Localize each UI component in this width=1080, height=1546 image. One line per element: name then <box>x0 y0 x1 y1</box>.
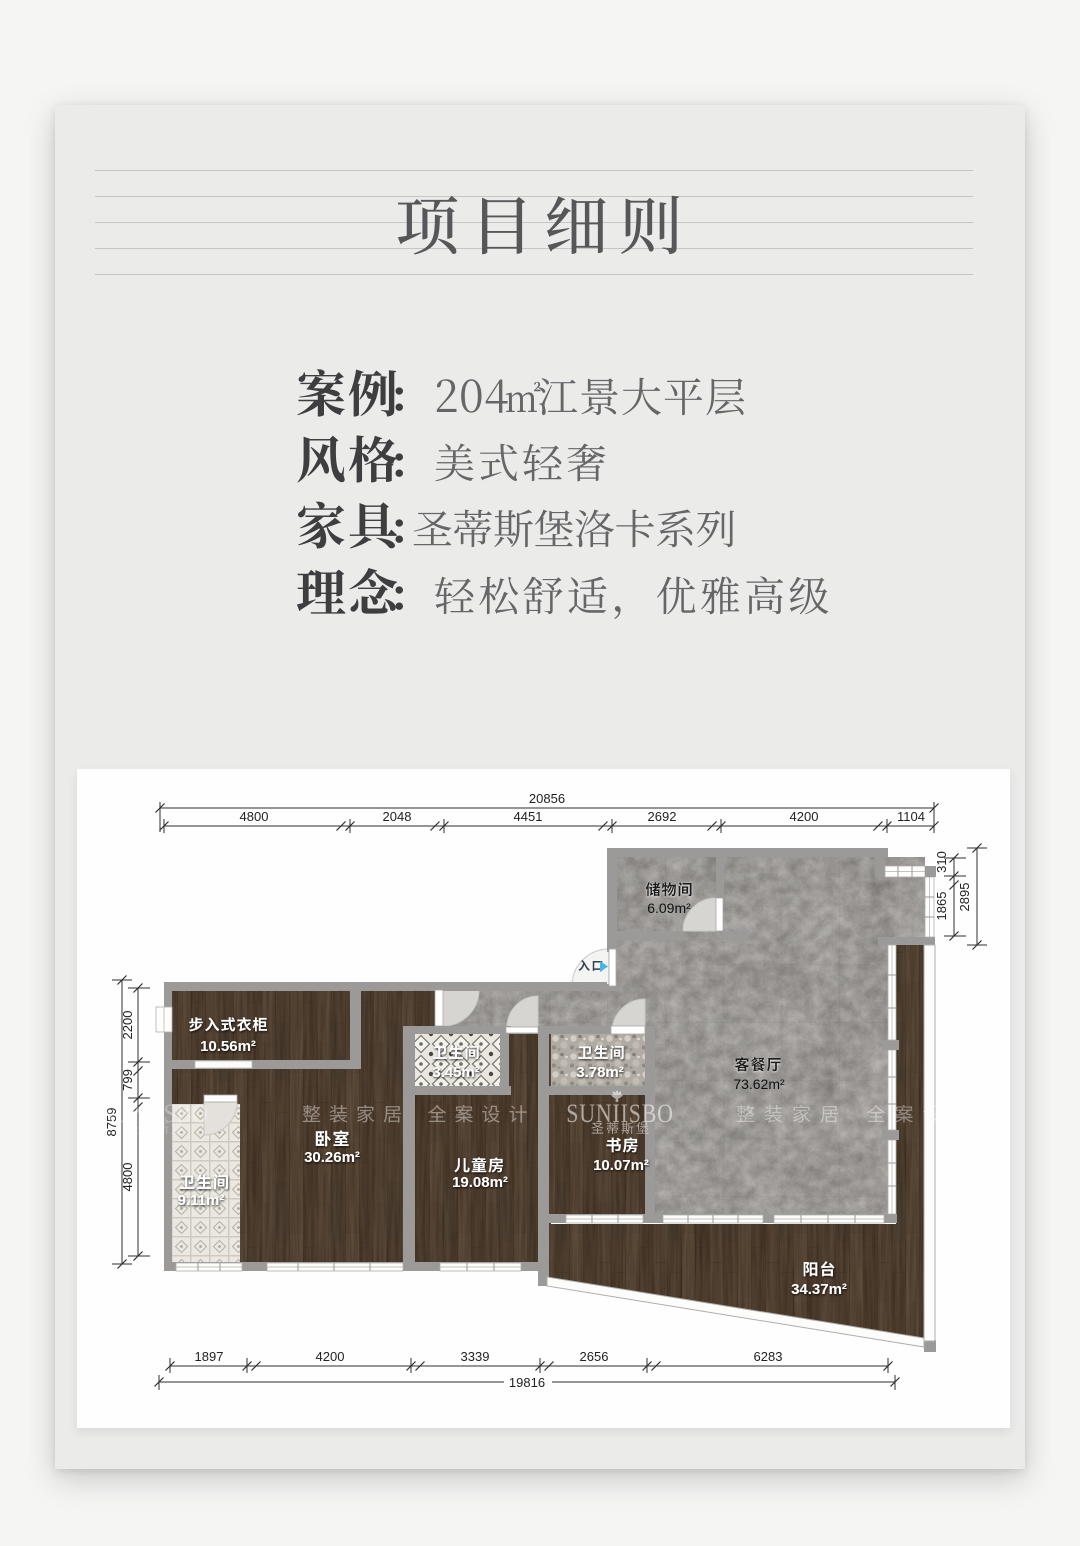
svg-text:10.07m²: 10.07m² <box>593 1157 649 1174</box>
svg-text:4200: 4200 <box>316 1349 345 1364</box>
svg-text:SUNIISBO: SUNIISBO <box>566 1100 673 1128</box>
svg-text:799: 799 <box>120 1069 135 1091</box>
svg-text:19816: 19816 <box>509 1375 545 1390</box>
svg-text:2895: 2895 <box>957 883 972 912</box>
svg-text:19.08m²: 19.08m² <box>452 1174 508 1191</box>
svg-text:1897: 1897 <box>195 1349 224 1364</box>
svg-text:4800: 4800 <box>240 809 269 824</box>
svg-text:4800: 4800 <box>120 1163 135 1192</box>
svg-text:SUNIISBO: SUNIISBO <box>101 1100 208 1128</box>
svg-text:30.26m²: 30.26m² <box>304 1149 360 1166</box>
svg-text:4451: 4451 <box>514 809 543 824</box>
svg-text:10.56m²: 10.56m² <box>200 1038 256 1055</box>
svg-text:9.11m²: 9.11m² <box>178 1192 225 1209</box>
svg-text:2656: 2656 <box>580 1349 609 1364</box>
svg-text:73.62m²: 73.62m² <box>733 1076 785 1092</box>
svg-text:4200: 4200 <box>790 809 819 824</box>
svg-text:3.78m²: 3.78m² <box>576 1064 624 1081</box>
svg-text:20856: 20856 <box>529 791 565 806</box>
svg-text:6.09m²: 6.09m² <box>647 900 691 916</box>
svg-text:6283: 6283 <box>754 1349 783 1364</box>
svg-text:34.37m²: 34.37m² <box>791 1281 847 1298</box>
svg-text:2692: 2692 <box>648 809 677 824</box>
svg-text:3339: 3339 <box>461 1349 490 1364</box>
svg-text:2048: 2048 <box>383 809 412 824</box>
svg-text:1104: 1104 <box>897 809 925 824</box>
svg-text:1865: 1865 <box>934 892 949 921</box>
svg-text:2200: 2200 <box>120 1011 135 1040</box>
svg-text:310: 310 <box>934 851 949 873</box>
svg-text:3.45m²: 3.45m² <box>432 1064 480 1081</box>
